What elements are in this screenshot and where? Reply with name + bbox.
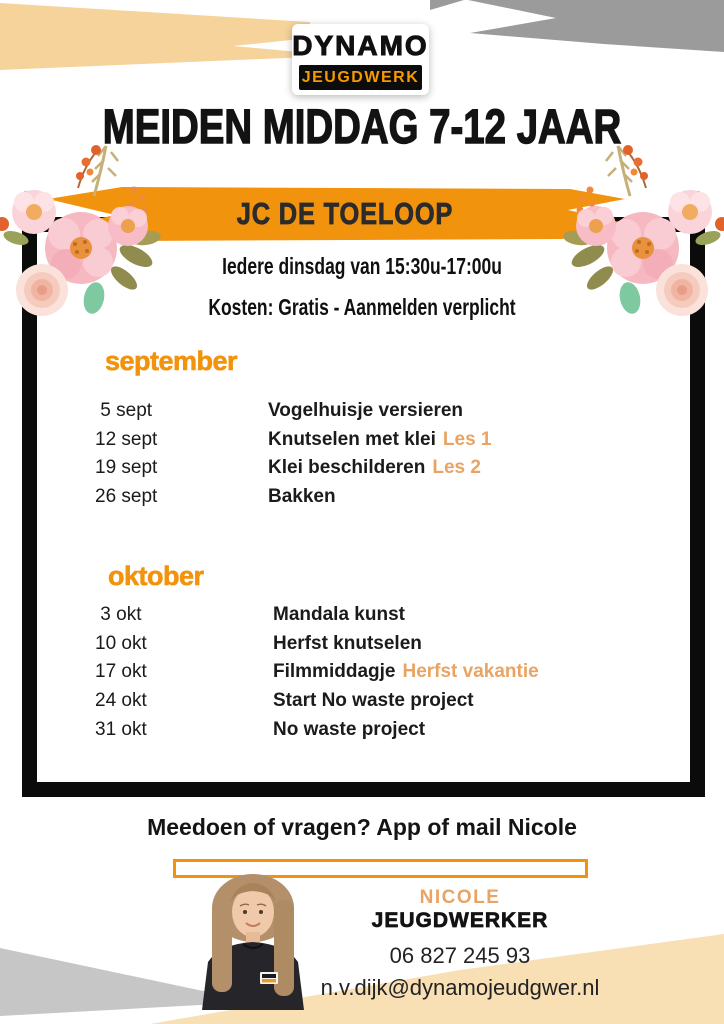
- row-activity: Start No waste project: [273, 690, 474, 712]
- row-activity: Vogelhuisje versieren: [268, 400, 463, 422]
- schedule-row: 3 okt Mandala kunst: [95, 601, 539, 630]
- gray-ribbon-shape: [468, 0, 724, 52]
- photo-face: [232, 887, 274, 937]
- logo-name: DYNAMO: [292, 30, 429, 62]
- schedule-row: 5 sept Vogelhuisje versieren: [95, 397, 491, 426]
- row-date: 17 okt: [95, 661, 273, 683]
- row-date: 5 sept: [95, 400, 268, 422]
- schedule-row: 26 sept Bakken: [95, 483, 491, 512]
- schedule-row: 12 sept Knutselen met klei Les 1: [95, 426, 491, 455]
- row-activity: Klei beschilderen: [268, 457, 425, 479]
- logo-bar: JEUGDWERK: [299, 65, 422, 90]
- row-note: Herfst vakantie: [402, 661, 538, 683]
- gray-triangle-shape: [430, 0, 464, 10]
- oktober-rows: 3 okt Mandala kunst 10 okt Herfst knutse…: [95, 601, 539, 744]
- schedule-row: 19 sept Klei beschilderen Les 2: [95, 454, 491, 483]
- info-cost-line: Kosten: Gratis - Aanmelden verplicht: [87, 294, 637, 321]
- row-date: 3 okt: [95, 604, 273, 626]
- page-title: MEIDEN MIDDAG 7-12 JAAR: [72, 100, 651, 155]
- schedule-row: 24 okt Start No waste project: [95, 687, 539, 716]
- contact-role: JEUGDWERKER: [300, 909, 620, 933]
- logo-subtitle: JEUGDWERK: [302, 69, 420, 87]
- contact-phone: 06 827 245 93: [300, 943, 620, 969]
- contact-email: n.v.dijk@dynamojeudgwer.nl: [300, 975, 620, 1001]
- dynamo-logo: DYNAMO JEUGDWERK: [292, 24, 429, 95]
- row-date: 31 okt: [95, 719, 273, 741]
- month-oktober-heading: oktober: [108, 561, 204, 592]
- row-activity: Bakken: [268, 486, 336, 508]
- flyer-page: JC DE TOELOOP DYNAMO JEUGDWERK MEIDEN MI…: [0, 0, 724, 1024]
- row-note: Les 1: [443, 429, 492, 451]
- row-activity: Knutselen met klei: [268, 429, 436, 451]
- row-activity: Mandala kunst: [273, 604, 405, 626]
- row-date: 10 okt: [95, 633, 273, 655]
- row-date: 12 sept: [95, 429, 268, 451]
- row-date: 26 sept: [95, 486, 268, 508]
- schedule-row: 10 okt Herfst knutselen: [95, 630, 539, 659]
- month-september-heading: september: [105, 346, 237, 377]
- september-rows: 5 sept Vogelhuisje versieren 12 sept Knu…: [95, 397, 491, 511]
- row-activity: Herfst knutselen: [273, 633, 422, 655]
- contact-block: NICOLE JEUGDWERKER 06 827 245 93 n.v.dij…: [300, 887, 620, 1001]
- row-activity: Filmmiddagje: [273, 661, 395, 683]
- cta-text: Meedoen of vragen? App of mail Nicole: [0, 814, 724, 841]
- location-banner-label: JC DE TOELOOP: [95, 196, 595, 232]
- row-note: Les 2: [432, 457, 481, 479]
- schedule-row: 17 okt Filmmiddagje Herfst vakantie: [95, 658, 539, 687]
- contact-name: NICOLE: [300, 887, 620, 909]
- row-date: 24 okt: [95, 690, 273, 712]
- schedule-row: 31 okt No waste project: [95, 715, 539, 744]
- info-schedule-line: Iedere dinsdag van 15:30u-17:00u: [87, 253, 637, 280]
- row-date: 19 sept: [95, 457, 268, 479]
- row-activity: No waste project: [273, 719, 425, 741]
- beige-ribbon-shape: [0, 3, 310, 70]
